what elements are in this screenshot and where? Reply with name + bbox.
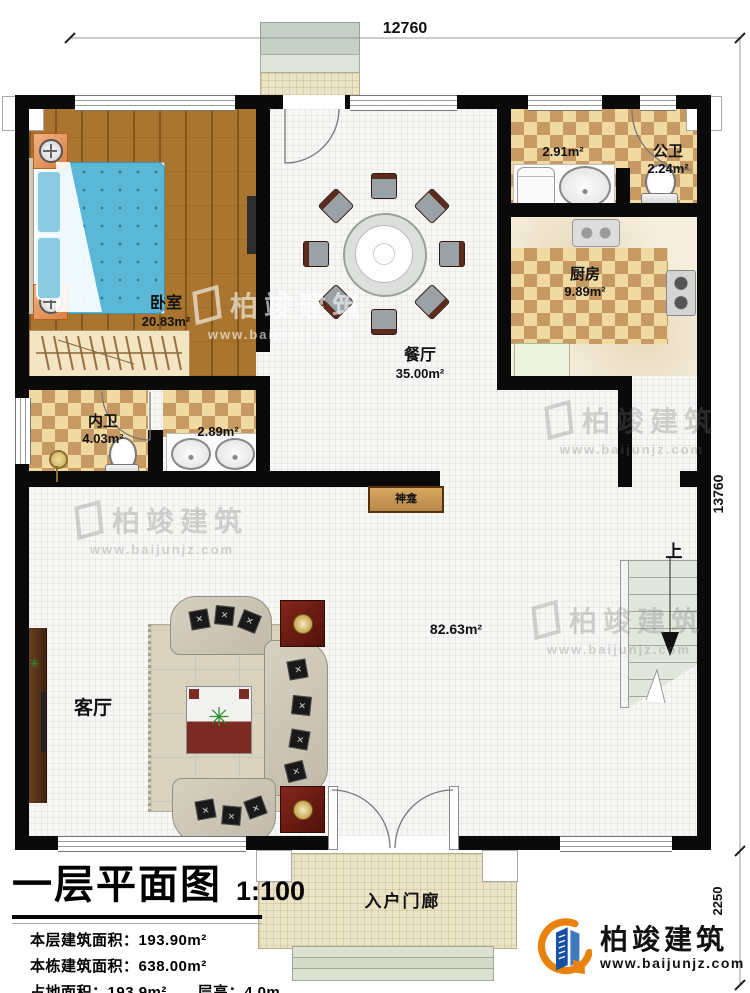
stat-value: 638.00m² [139,958,207,975]
window [640,95,676,111]
cushion [188,608,210,630]
dining-chair [371,173,397,199]
brand-logo-icon [538,918,592,978]
stat-row: 占地面积：193.9m² 层高：4.0m [12,981,352,993]
window [15,398,31,464]
plan-scale: 1:100 [236,876,305,910]
dining-chair [303,241,329,267]
plant-icon: ✳ [29,656,40,672]
kitchen-sink [572,219,620,247]
room-area: 35.00m² [365,366,475,381]
stove [666,270,696,316]
brand-name: 柏竣建筑 [600,925,745,954]
coffee-table: ✳ [186,686,252,754]
public-bath-label: 公卫 2.24m² [625,143,711,176]
room-area: 4.03m² [58,431,148,446]
cushion [214,605,235,626]
dimension-top: 12760 [350,20,460,38]
room-area: 9.89m² [530,284,640,299]
room-area: 20.83m² [111,314,221,329]
stairs-up-label: 上 [658,542,690,562]
plan-title: 一层平面图 [12,852,222,910]
wall [497,376,632,390]
stat-value: 193.90m² [139,932,207,949]
floor-plan: ✳ ✳ 神龛 [0,0,750,993]
lamp-icon [293,800,313,820]
dining-chair [439,241,465,267]
pillow [36,236,62,300]
balcony-canopy [260,22,360,56]
stat-label: 层高： [198,984,245,993]
room-name: 卧室 [111,295,221,314]
room-name: 餐厅 [365,347,475,366]
kitchen-label: 厨房 9.89m² [530,266,640,299]
door-leaf [328,786,338,850]
divider [12,915,262,919]
balcony-band [260,54,360,74]
stat-label: 占地面积： [30,984,108,993]
cushion [286,658,308,680]
table-corner [239,689,249,699]
fan-icon [39,139,63,163]
vanity-area-label: 2.89m² [178,424,258,439]
pillow [36,170,62,234]
shrine-niche: 神龛 [368,486,444,513]
divider [12,923,262,924]
window [528,95,602,111]
wardrobe [29,330,190,378]
window [350,95,457,111]
cushion [288,728,310,750]
lamp-icon [293,614,313,634]
stat-label: 本层建筑面积： [30,932,139,949]
shrine-label: 神龛 [395,493,417,506]
brand-logo: 柏竣建筑 www.baijunjz.com [538,918,745,978]
plant-icon: ✳ [208,702,230,733]
room-name: 厨房 [530,266,640,284]
stat-value: 193.9m² [108,984,167,993]
stat-value: 4.0m [244,984,280,993]
door-opening [283,95,345,109]
cushion [221,805,242,826]
vanity-sink [171,438,211,470]
living-name-label: 客厅 [58,698,128,720]
wall [697,95,711,850]
room-name: 公卫 [625,143,711,161]
cushion [291,695,312,716]
wall [497,109,511,390]
wall [511,203,697,217]
bedroom-tv [247,196,256,254]
dining-label: 餐厅 35.00m² [365,347,475,381]
laundry-sink [559,166,611,208]
dining-chair [371,309,397,335]
room-name: 内卫 [58,413,148,431]
window [75,95,235,111]
end-table [280,600,325,647]
wall [15,376,270,390]
tv [41,692,46,752]
stat-row: 本层建筑面积：193.90m² [12,929,352,950]
end-table [280,786,325,833]
wall [256,390,270,472]
bedroom-label: 卧室 20.83m² [111,295,221,329]
title-block: 一层平面图 1:100 本层建筑面积：193.90m² 本栋建筑面积：638.0… [12,852,352,993]
wall [256,109,270,352]
shower-head [49,450,68,469]
wall [680,471,697,487]
cushion [194,798,216,820]
room-area: 2.24m² [625,161,711,176]
wall [618,376,632,487]
fridge [514,343,570,378]
window [560,836,672,852]
entrance-opening [330,836,455,850]
wall [148,430,163,472]
stat-label: 本栋建筑面积： [30,958,139,975]
living-area-label: 82.63m² [420,621,492,638]
washing-machine [517,167,555,205]
wall [15,471,440,487]
inner-bath-label: 内卫 4.03m² [58,413,148,446]
dimension-right: 13760 [710,462,726,526]
window-sill [482,850,518,882]
table-corner [189,689,199,699]
window [58,836,246,852]
brand-url: www.baijunjz.com [600,955,745,971]
dining-table-center [373,243,395,265]
door-leaf [449,786,459,850]
stat-row: 本栋建筑面积：638.00m² [12,955,352,976]
stairs-rail [620,560,629,708]
vanity-sink [215,438,255,470]
laundry-area-label: 2.91m² [523,144,603,159]
